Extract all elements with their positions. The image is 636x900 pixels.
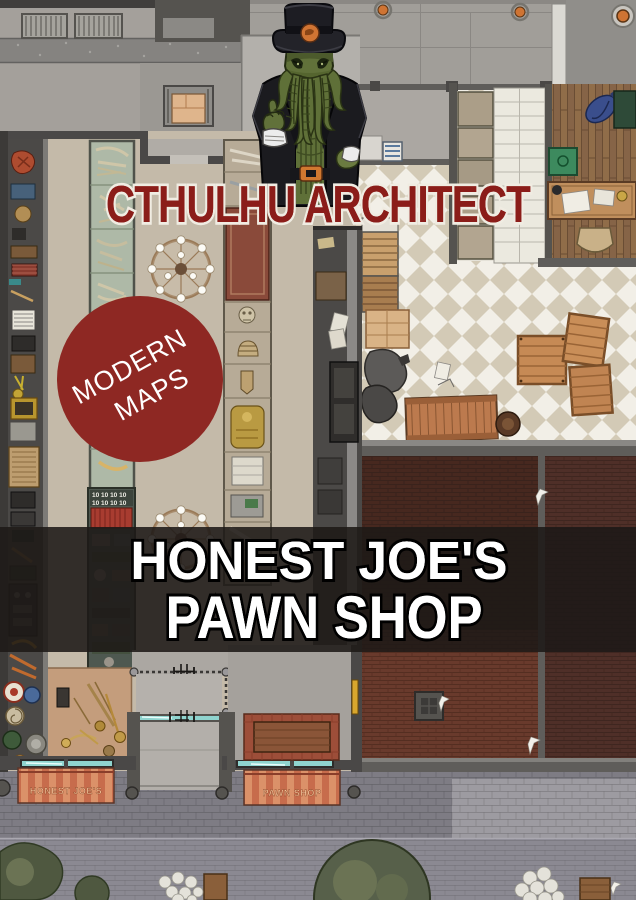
svg-text:PAWN SHOP: PAWN SHOP [263, 788, 322, 798]
svg-text:HONEST JOE'S: HONEST JOE'S [30, 786, 102, 796]
svg-text:HONEST JOE'S: HONEST JOE'S [131, 531, 508, 591]
svg-text:10 10 10 10: 10 10 10 10 [92, 492, 127, 499]
svg-text:10 10 10 10: 10 10 10 10 [92, 500, 127, 507]
svg-text:PAWN SHOP: PAWN SHOP [166, 584, 483, 651]
svg-text:CTHULHU ARCHITECT: CTHULHU ARCHITECT [106, 176, 531, 234]
